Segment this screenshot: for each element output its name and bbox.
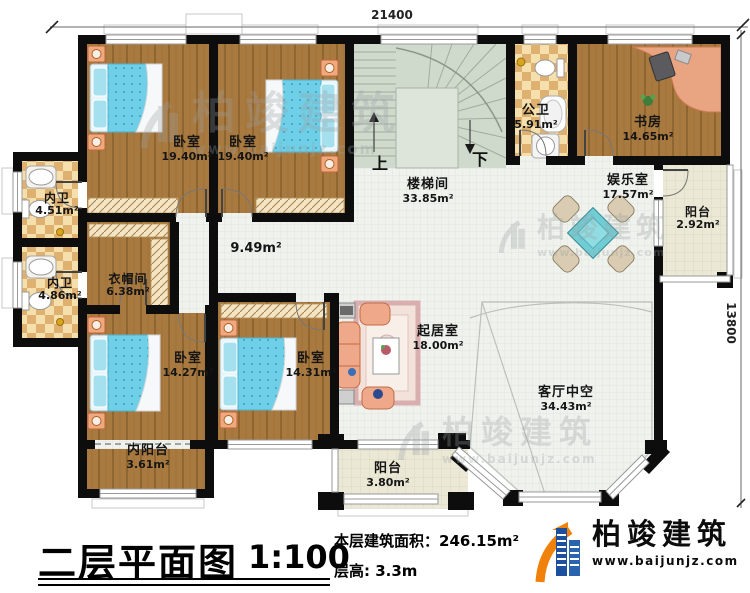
room-label-bedroom-tl: 卧室19.40m² xyxy=(161,136,212,163)
hall-area-label: 9.49m² xyxy=(230,241,281,256)
area-value: 246.15m² xyxy=(439,532,519,550)
brand-name: 柏竣建筑 xyxy=(592,520,739,549)
room-label-bath-north: 内卫4.51m² xyxy=(35,192,78,218)
room-label-inner-balcony: 内阳台3.61m² xyxy=(126,444,169,471)
title-block: 二层平面图 1:100 本层建筑面积：246.15m² 层高: 3.3m 柏竣建… xyxy=(0,518,750,593)
brand-block: 柏竣建筑 www.baijunjz.com xyxy=(532,520,739,590)
area-label: 本层建筑面积： xyxy=(334,532,439,550)
dimension-width: 21400 xyxy=(371,8,413,22)
floorplan-page: 柏竣建筑 www.baijunjz.com 柏竣建筑 www.baijunjz.… xyxy=(0,0,750,593)
height-value: 3.3m xyxy=(375,562,417,580)
room-label-stair-hall: 楼梯间33.85m² xyxy=(402,178,453,205)
room-label-bedroom-tm: 卧室19.40m² xyxy=(217,136,268,163)
height-label: 层高: xyxy=(334,562,370,580)
title-underline xyxy=(38,584,330,586)
room-label-entertainment: 娱乐室17.57m² xyxy=(602,174,653,201)
dimension-height: 13800 xyxy=(724,302,738,344)
title-underline xyxy=(38,578,330,580)
room-label-study: 书房14.65m² xyxy=(622,116,673,143)
room-label-balcony-east: 阳台2.92m² xyxy=(676,206,719,232)
room-label-bedroom-bl: 卧室14.27m² xyxy=(162,352,213,379)
brand-url: www.baijunjz.com xyxy=(592,554,739,568)
room-label-bedroom-bm: 卧室14.31m² xyxy=(285,352,336,379)
stair-up-label: 上 xyxy=(372,150,388,174)
room-label-cloakroom: 衣帽间6.38m² xyxy=(106,273,149,299)
room-label-living: 起居室18.00m² xyxy=(412,325,463,352)
baijun-logo-icon xyxy=(532,520,586,590)
room-label-bath-south: 内卫4.86m² xyxy=(38,277,81,303)
plan-info: 本层建筑面积：246.15m² 层高: 3.3m xyxy=(334,530,519,581)
room-label-living-void: 客厅中空34.43m² xyxy=(538,386,594,413)
floorplan-drawing xyxy=(0,0,750,522)
room-label-public-bath: 公卫5.91m² xyxy=(514,104,557,131)
room-label-balcony-south: 阳台3.80m² xyxy=(366,462,409,489)
stair-down-label: 下 xyxy=(472,146,488,170)
